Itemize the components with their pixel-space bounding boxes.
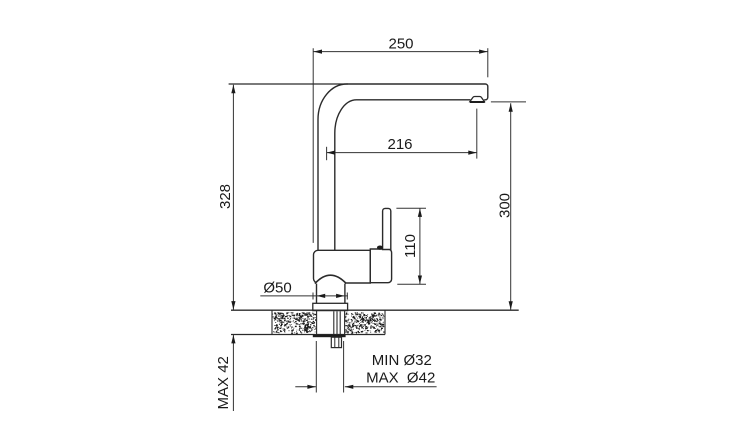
svg-text:216: 216 [387,136,412,153]
svg-text:250: 250 [388,36,413,53]
svg-text:MAX 42: MAX 42 [215,356,232,409]
svg-text:328: 328 [217,184,234,209]
svg-text:MIN Ø32: MIN Ø32 [372,352,432,369]
svg-text:Ø50: Ø50 [263,280,291,297]
svg-text:MAX Ø42: MAX Ø42 [366,370,435,387]
svg-text:110: 110 [402,234,419,258]
svg-text:300: 300 [496,193,513,218]
